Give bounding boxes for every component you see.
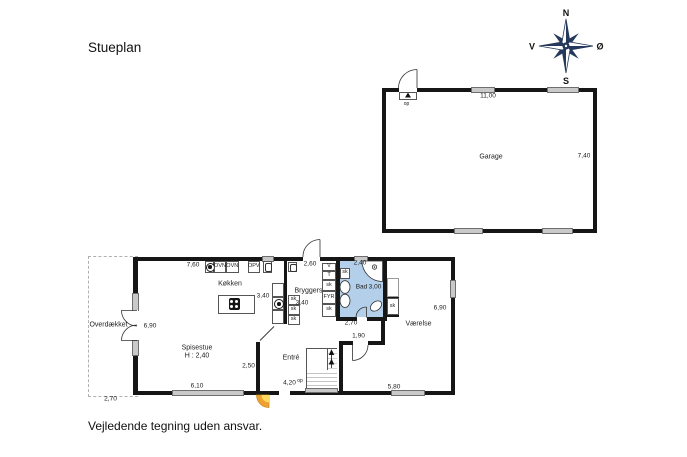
bryggers-closet-3: sk (288, 315, 300, 325)
garage-window (455, 229, 482, 233)
closet-wall-bottom (384, 315, 399, 318)
dining-label: Spisestue (182, 345, 213, 352)
garage-door-arc (399, 70, 418, 89)
compass-label-north: N (563, 8, 570, 18)
window-right-bedroom (451, 281, 456, 297)
tech-box-boiler: FYR (322, 291, 336, 304)
compass-label-east: Ø (596, 42, 603, 52)
bath-bottom-dimension: 2,70 (345, 320, 358, 327)
bath-dimension: 3,00 (369, 283, 382, 290)
disclaimer-text: Vejledende tegning uden ansvar. (88, 419, 262, 433)
dining-door-leaf (260, 327, 274, 341)
garage-wall-right (593, 88, 597, 233)
stairs-upper-treads (327, 349, 337, 370)
kitchen-label: Køkken (218, 281, 242, 288)
bedroom-side-dimension: 6,90 (434, 305, 447, 312)
tech-box-closet-bottom: sk (322, 304, 336, 317)
compass-rose: N S V Ø (527, 5, 605, 85)
compass-shade-w (539, 42, 566, 46)
oven-box-1: OVN (214, 261, 226, 273)
entrance-door-fan (257, 395, 270, 408)
washing-machine-icon (274, 299, 285, 310)
garage-width-dimension: 11,00 (480, 93, 496, 100)
cooktop-icon (229, 298, 241, 310)
closet-niche (387, 278, 399, 297)
bryggers-sink-icon (290, 264, 297, 273)
dining-side-dimension: 6,90 (144, 323, 157, 330)
stairs-divider (327, 348, 328, 370)
kitchen-side-dimension: 3,40 (257, 293, 270, 300)
bathroom-cabinet: sk (340, 268, 350, 279)
window-bottom-dining (173, 391, 243, 395)
floor-plan-page: Stueplan Vejledende tegning uden ansvar.… (0, 0, 687, 457)
terrace-label: Overdækket (89, 322, 127, 329)
garage-window (548, 88, 578, 92)
stairs-lower-treads (307, 370, 337, 390)
dishwasher-box: OPV (248, 261, 261, 273)
stairs-op-label: op (297, 378, 303, 384)
compass-shade-s (562, 46, 566, 73)
terrace-dimension: 2,70 (104, 396, 117, 403)
kitchen-top-dimension: 7,60 (187, 261, 200, 268)
garage-depth-dimension: 7,40 (578, 153, 591, 160)
compass-hub-dot (565, 45, 567, 47)
wall-entre-bedroom (339, 341, 343, 395)
closet-cabinet: sk (387, 298, 399, 315)
garage-door-op-label: op (404, 101, 410, 107)
bryggers-top-dimension: 2,60 (304, 260, 317, 267)
garage-wall-left (382, 88, 386, 233)
page-title: Stueplan (88, 40, 141, 55)
bryggers-label: Bryggers (294, 287, 322, 294)
compass-label-west: V (529, 42, 535, 52)
corridor-dimension: 1,90 (352, 333, 365, 340)
bryggers-door-arc (303, 240, 320, 258)
entrance-door-fan-inner (262, 395, 270, 403)
oven-box-2: OVN (226, 261, 239, 273)
house-wall-right (451, 257, 456, 395)
house-wall-top (133, 257, 455, 261)
tech-box-ventilation: V (322, 263, 336, 272)
terrace-door-opening (133, 310, 138, 341)
window-left-upper (133, 294, 138, 310)
kitchen-cabinet (272, 310, 284, 324)
tech-box-dryer: T (322, 271, 336, 280)
wall-kitchen-bryggers (284, 259, 288, 324)
garage-window (472, 88, 494, 92)
entre-label: Entré (283, 354, 300, 361)
bryggers-side-dimension: 3,40 (296, 299, 309, 306)
wall-dining-entre (256, 342, 260, 391)
stairs-landing (306, 389, 337, 392)
wall-corridor-south-right (368, 341, 385, 345)
bryggers-closet-2: sk (288, 305, 300, 315)
entrance-door-opening (279, 391, 291, 395)
dining-inner-dimension: 2,50 (242, 363, 255, 370)
bath-label: Bad (356, 283, 368, 290)
bedroom-door-arc (353, 345, 369, 361)
garage-room-label: Garage (479, 154, 502, 161)
bedroom-bottom-dimension: 5,80 (388, 383, 401, 390)
dining-height-note: H : 2,40 (185, 353, 210, 360)
window-left-lower (133, 341, 138, 355)
kitchen-cabinet (272, 283, 284, 297)
dining-bottom-dimension: 6,10 (191, 382, 204, 389)
bedroom-label: Værelse (405, 321, 431, 328)
garage-window (543, 229, 572, 233)
entre-bottom-dimension: 4,20 (283, 379, 296, 386)
compass-label-south: S (563, 76, 569, 86)
window-bottom-bedroom (392, 391, 424, 395)
compass-shade-n (566, 19, 570, 46)
garage-door-threshold (399, 92, 418, 100)
tech-box-closet-top: sk (322, 280, 336, 292)
bath-top-dimension: 2,40 (354, 260, 367, 267)
kitchen-sink-icon (265, 263, 272, 272)
compass-shade-e (566, 46, 593, 50)
